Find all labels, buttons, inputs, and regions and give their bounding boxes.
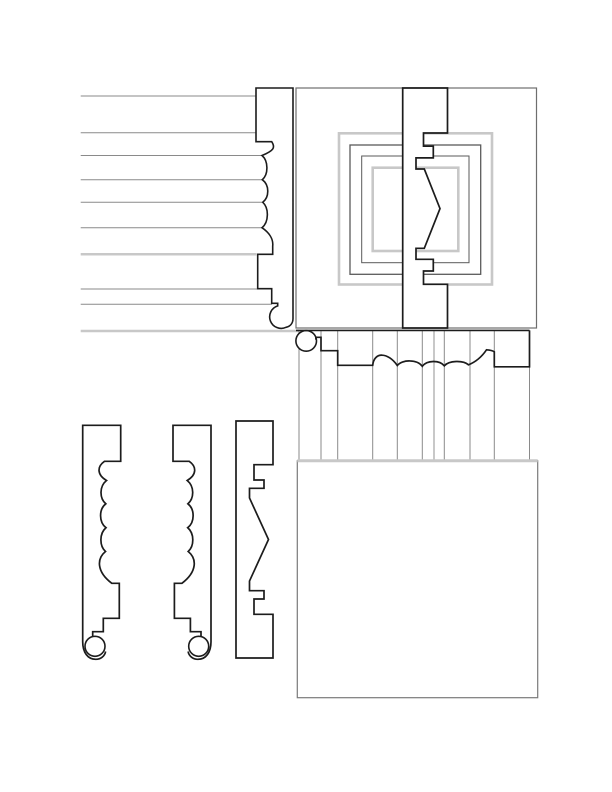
casing-profile-right: [173, 425, 211, 659]
panel-molding-section-band: [403, 88, 448, 328]
side-casing-profile-shape: [256, 88, 293, 328]
drawing-sheet: [0, 0, 612, 792]
casing-profile-left-shape: [85, 636, 105, 656]
casing-profile-right-shape: [189, 636, 209, 656]
casing-profile-right-shape: [173, 425, 211, 659]
wall-panel-rectangle: [297, 461, 537, 698]
panel-molding-profile-shape: [236, 421, 273, 658]
side-casing-profile: [256, 88, 293, 328]
panel-molding-section-band-shape: [403, 88, 448, 328]
casing-profile-left: [83, 425, 121, 659]
head-casing-section-shape: [296, 331, 317, 352]
wall-panel-rectangle-shape: [297, 461, 537, 698]
panel-molding-profile: [236, 421, 273, 658]
casing-profile-left-shape: [83, 425, 121, 659]
molding-detail-drawing: [0, 0, 612, 792]
